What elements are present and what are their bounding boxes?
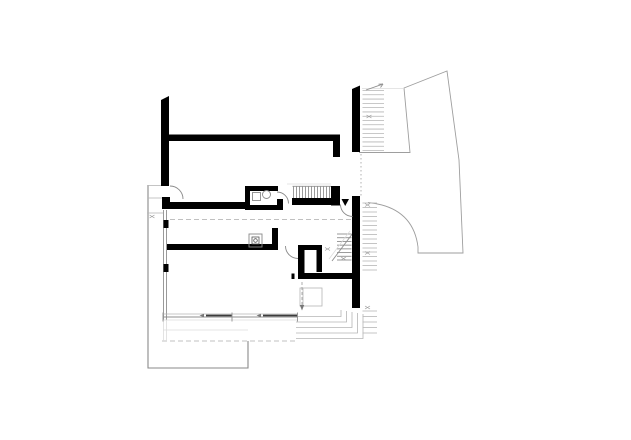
stair-wall-bottom	[292, 198, 331, 205]
wall-stub-top-right	[333, 135, 340, 158]
kitchen-fixture-inner	[252, 237, 259, 244]
left-exterior-door-swing	[170, 186, 183, 199]
stair-break-line	[332, 233, 353, 261]
x-marker	[365, 306, 370, 309]
wall-left-upper	[161, 96, 169, 186]
exterior-stair-run-mid1	[363, 203, 378, 248]
jamb-mark	[164, 264, 169, 272]
entrance-door-swing	[341, 205, 353, 217]
left-thin-wall	[164, 210, 167, 341]
exterior-stairs	[363, 84, 385, 333]
kitchen-fixture-circle	[254, 239, 258, 243]
terrace-corner-steps	[296, 310, 363, 339]
window-glazing	[163, 313, 298, 322]
flue-arrow-icon	[300, 305, 304, 311]
wall-mid-horizontal	[162, 202, 245, 209]
bathroom-wall-jamb	[277, 199, 283, 210]
exterior-stair-run-lower	[363, 311, 378, 333]
closet-wall-right	[317, 245, 323, 272]
x-marker	[365, 204, 370, 207]
door-jamb-tick	[292, 274, 295, 280]
x-marker	[325, 248, 330, 251]
washbasin-fixture	[263, 191, 271, 199]
x-marker	[150, 215, 155, 218]
jamb-mark	[164, 220, 169, 228]
floor-plan-sheet: architectural floor plan (basement level…	[0, 0, 631, 440]
closet-wall-bottom	[298, 273, 352, 279]
wall-right-upper	[352, 86, 360, 153]
wall-right-lower	[352, 196, 360, 308]
wall-top-horizontal	[168, 135, 340, 142]
stair-direction-arrow	[366, 84, 383, 90]
entrance-direction-triangle-icon	[342, 199, 350, 206]
toilet-fixture	[253, 193, 261, 201]
kitchen-wall-stub	[272, 228, 278, 250]
stair-treads-upper	[294, 187, 330, 199]
stair-wall-right	[331, 186, 340, 206]
exterior-stair-run-upper	[363, 91, 385, 151]
floor-plan-drawing	[0, 0, 631, 440]
closet-door-swing	[286, 246, 299, 259]
